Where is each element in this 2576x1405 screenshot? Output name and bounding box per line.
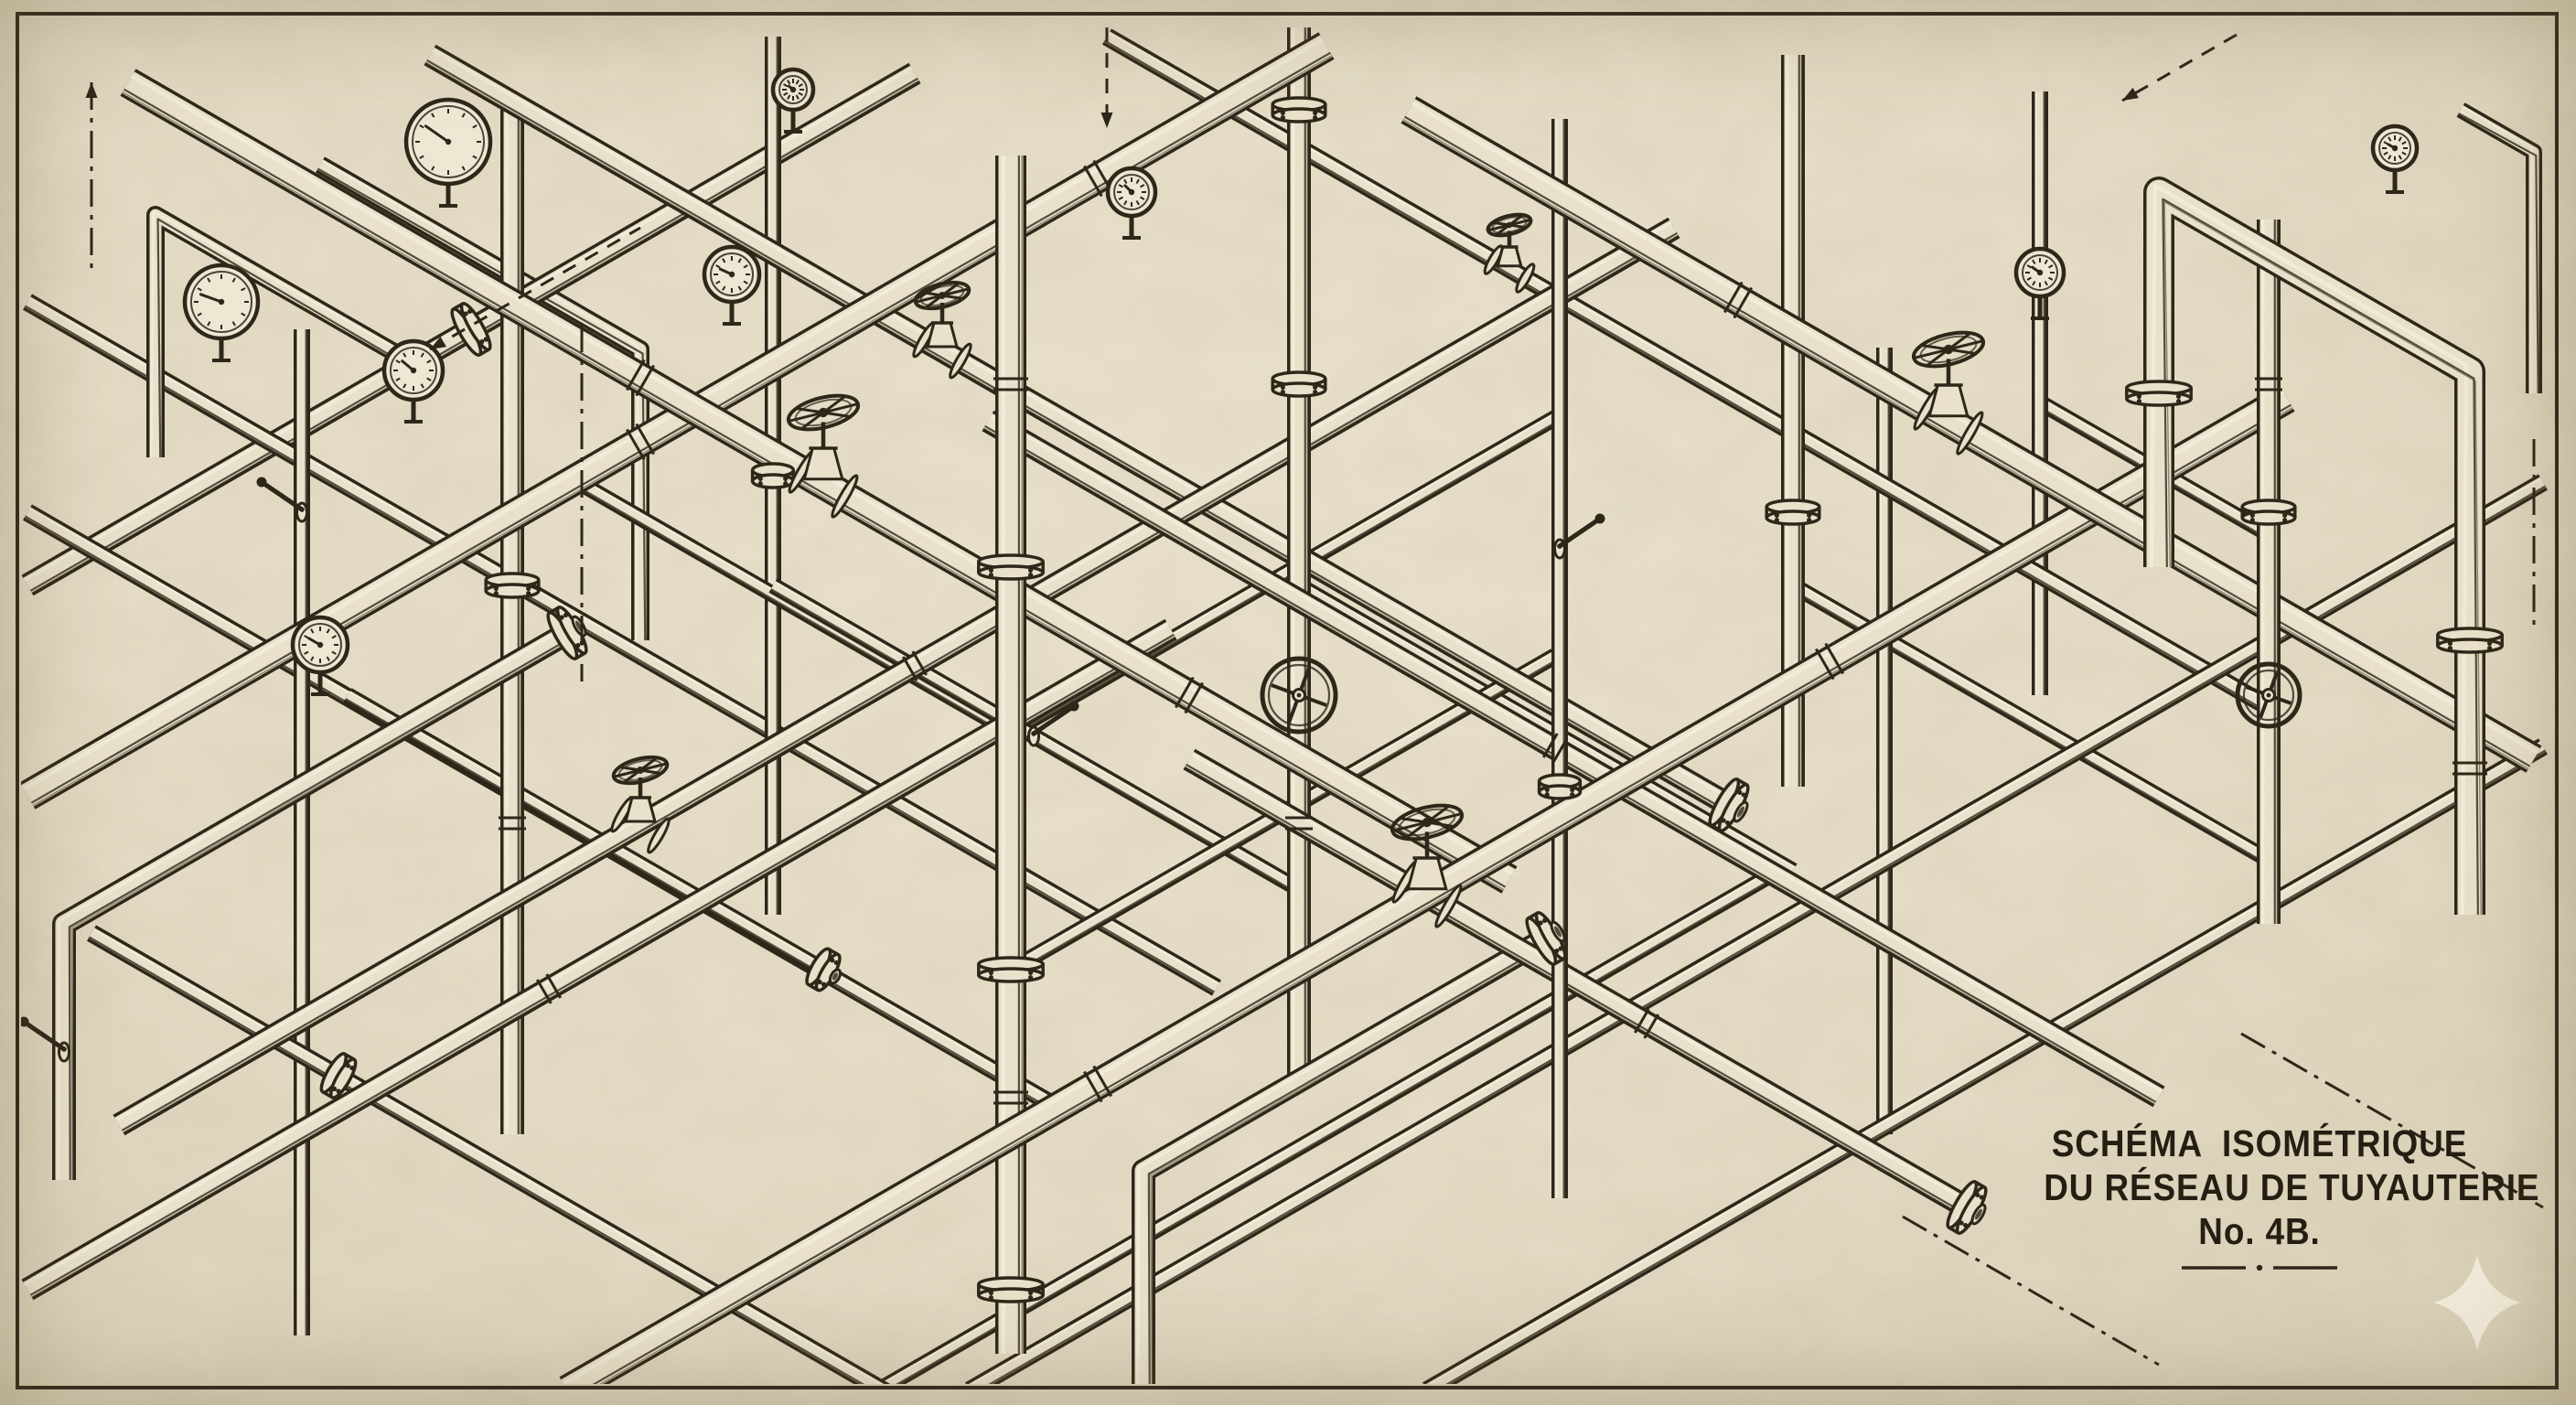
title-line-2: DU RÉSEAU DE TUYAUTERIE — [2044, 1165, 2475, 1209]
title-line-1: SCHÉMA ISOMÉTRIQUE — [2044, 1121, 2475, 1165]
title-line-3: No. 4B. — [2044, 1209, 2475, 1253]
title-block: SCHÉMA ISOMÉTRIQUE DU RÉSEAU DE TUYAUTER… — [2044, 1121, 2475, 1253]
piping-blueprint-page: SCHÉMA ISOMÉTRIQUE DU RÉSEAU DE TUYAUTER… — [0, 0, 2576, 1405]
